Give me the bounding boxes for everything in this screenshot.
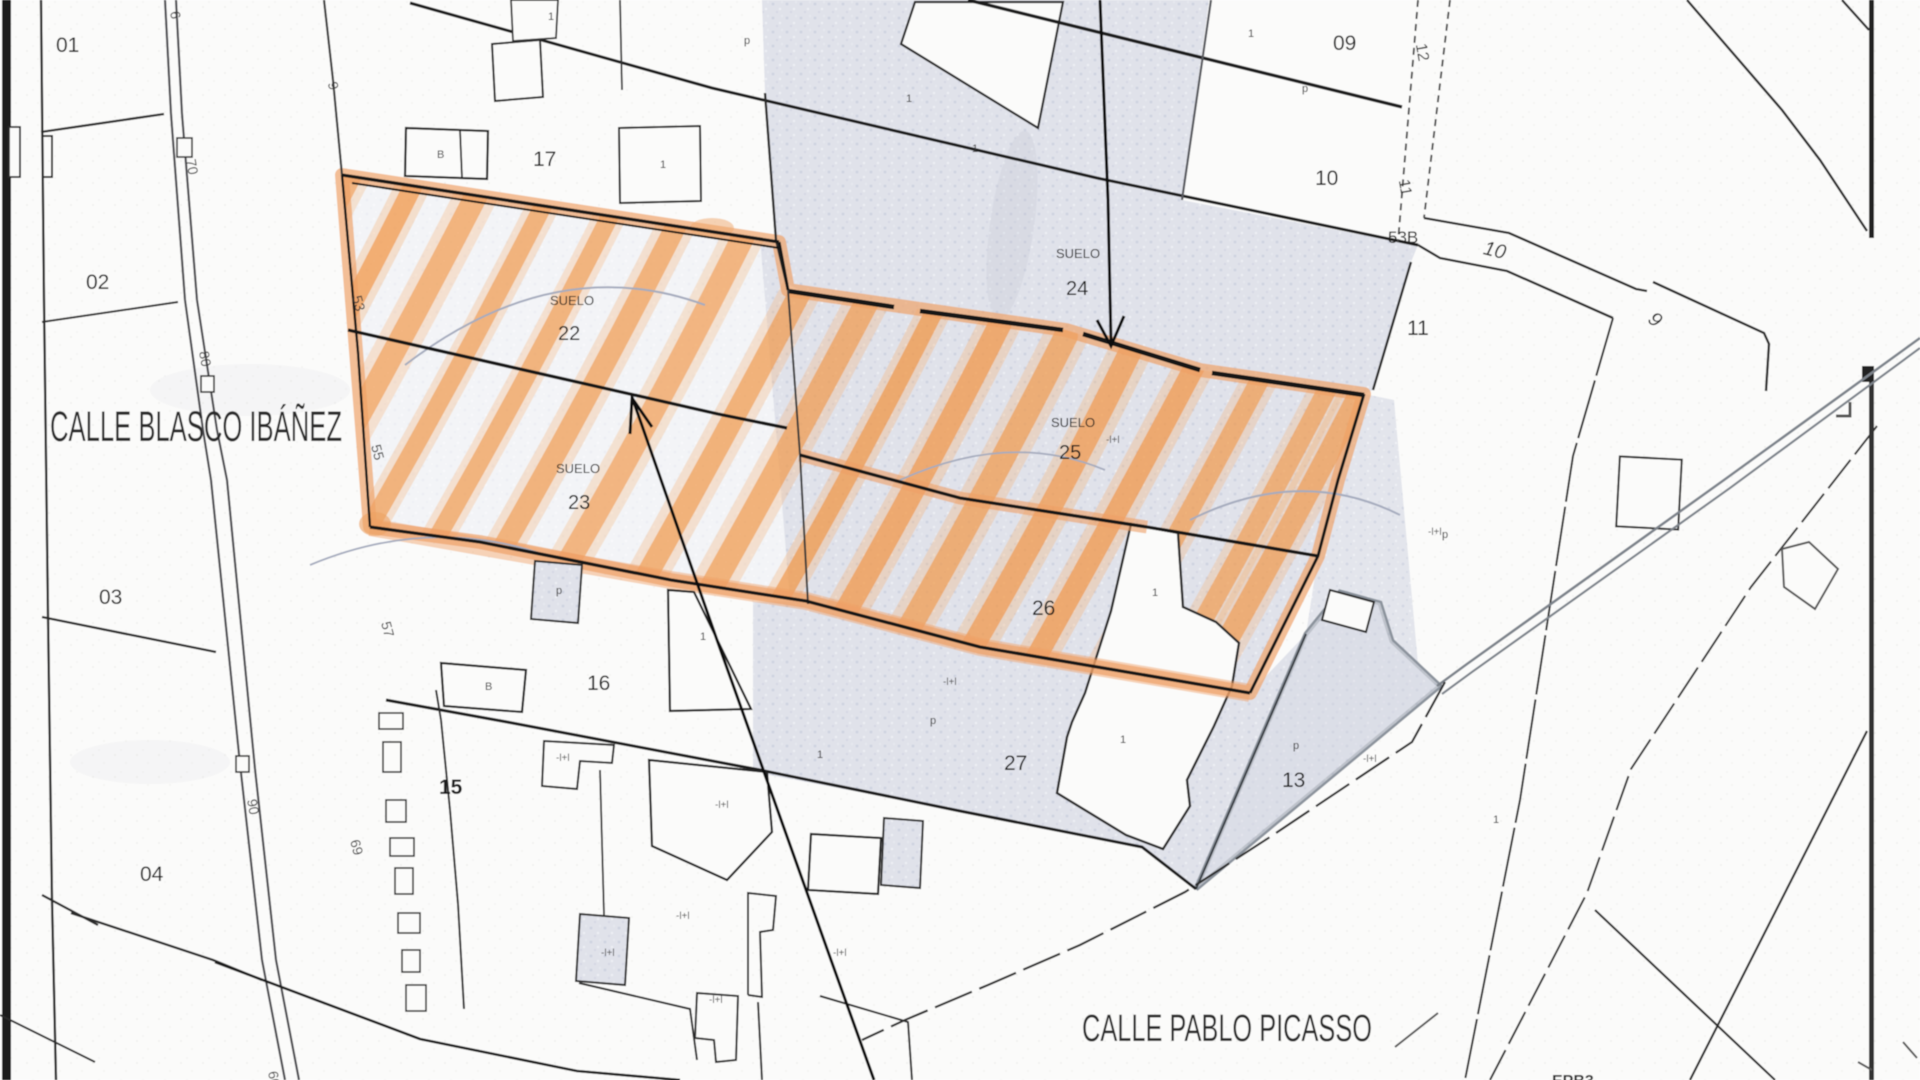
svg-text:-l+l: -l+l <box>601 948 615 959</box>
svg-text:SUELO: SUELO <box>1056 246 1100 261</box>
svg-text:B: B <box>485 681 492 693</box>
svg-text:1: 1 <box>817 749 823 761</box>
svg-text:70: 70 <box>183 158 201 176</box>
svg-text:80: 80 <box>196 350 214 368</box>
svg-text:CALLE BLASCO IBÁÑEZ: CALLE BLASCO IBÁÑEZ <box>50 403 342 451</box>
svg-text:04: 04 <box>140 863 164 886</box>
svg-text:1: 1 <box>548 11 554 23</box>
svg-text:p: p <box>556 585 562 597</box>
svg-text:B: B <box>437 149 444 161</box>
svg-text:1: 1 <box>660 159 666 171</box>
svg-text:17: 17 <box>533 148 556 171</box>
svg-text:10: 10 <box>1315 167 1338 190</box>
svg-text:09: 09 <box>1333 32 1356 55</box>
svg-text:1: 1 <box>906 93 912 105</box>
svg-text:26: 26 <box>1032 597 1055 620</box>
svg-text:-l+l: -l+l <box>676 911 690 922</box>
svg-text:24: 24 <box>1066 278 1088 300</box>
svg-text:12: 12 <box>1412 42 1432 63</box>
svg-text:p: p <box>1442 529 1448 541</box>
svg-text:15: 15 <box>439 776 463 799</box>
svg-text:-l+l: -l+l <box>556 753 570 764</box>
svg-text:11: 11 <box>1407 317 1429 340</box>
svg-text:SUELO: SUELO <box>1051 415 1095 430</box>
svg-text:EPB3: EPB3 <box>1552 1073 1594 1080</box>
svg-text:1: 1 <box>1152 587 1158 599</box>
svg-text:-l+l: -l+l <box>1106 435 1120 446</box>
svg-text:53B: 53B <box>1388 228 1418 247</box>
svg-text:23: 23 <box>568 492 590 514</box>
svg-text:p: p <box>1302 83 1308 95</box>
svg-text:02: 02 <box>86 271 109 294</box>
svg-text:SUELO: SUELO <box>556 461 600 476</box>
svg-text:01: 01 <box>56 34 79 57</box>
svg-text:-l+l: -l+l <box>715 800 729 811</box>
svg-text:p: p <box>744 35 750 47</box>
svg-text:CALLE PABLO PICASSO: CALLE PABLO PICASSO <box>1082 1008 1372 1050</box>
svg-text:p: p <box>1293 740 1299 752</box>
svg-text:11: 11 <box>1395 178 1415 197</box>
svg-text:SUELO: SUELO <box>550 293 594 308</box>
svg-text:1: 1 <box>1493 814 1499 826</box>
svg-text:-l+l: -l+l <box>1363 754 1377 765</box>
svg-text:-l+l: -l+l <box>943 677 957 688</box>
svg-text:1: 1 <box>972 143 978 155</box>
svg-text:1: 1 <box>1248 28 1254 40</box>
svg-text:90: 90 <box>244 798 262 816</box>
svg-text:-l+l: -l+l <box>1428 527 1442 538</box>
svg-text:03: 03 <box>99 586 122 609</box>
svg-text:13: 13 <box>1282 769 1305 792</box>
svg-text:60: 60 <box>265 1070 283 1080</box>
svg-text:22: 22 <box>558 323 580 345</box>
svg-text:-l+l: -l+l <box>709 995 723 1006</box>
svg-text:1: 1 <box>1120 734 1126 746</box>
svg-text:p: p <box>930 715 936 727</box>
svg-text:16: 16 <box>587 672 610 695</box>
svg-text:25: 25 <box>1059 442 1081 464</box>
svg-text:27: 27 <box>1004 752 1027 775</box>
svg-text:-l+l: -l+l <box>833 948 847 959</box>
svg-text:1: 1 <box>700 631 706 643</box>
